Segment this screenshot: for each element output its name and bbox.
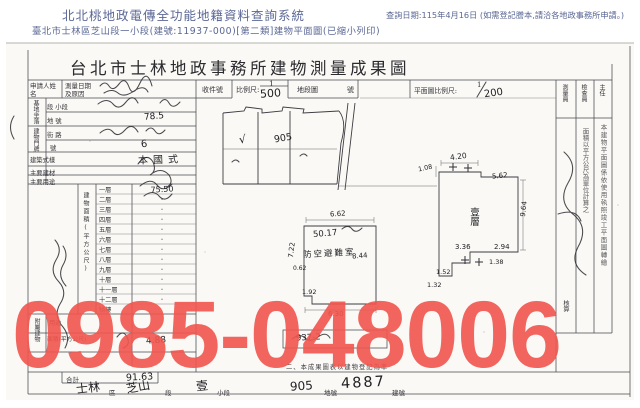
- receipt-label: 收件號: [202, 85, 223, 95]
- plan-dim-bottom4: 1.52: [436, 268, 450, 276]
- floor-area-row: 四層 ·: [96, 214, 196, 224]
- margin-caption-chief: 主任: [597, 84, 606, 116]
- street-row-label: 街 路: [47, 130, 62, 139]
- margin-check-label: 核算: [561, 300, 570, 326]
- style-row-label: 建築式樣: [30, 155, 55, 164]
- floor-label: 七層: [96, 245, 133, 254]
- floor-area-row: 九層 ·: [96, 264, 196, 274]
- floor-label: 一層: [96, 185, 133, 194]
- floor-plan-label: 壹層: [466, 207, 480, 235]
- document-line: 臺北市士林區芝山段一小段(建號:11937-000)[第二類]建物平面圖(已縮小…: [32, 23, 380, 37]
- margin-note-a: 本建物平面圖係依使用執照竣工平面圖轉繪: [598, 124, 608, 329]
- usage-row-label: 主要用途: [30, 177, 55, 186]
- floor-area-row: 七層 ·: [96, 244, 196, 254]
- floor-label: 二層: [96, 195, 133, 204]
- system-title: 北北桃地政電傳全功能地籍資料查詢系統: [62, 5, 305, 24]
- houseno-row-label: 號: [50, 143, 56, 152]
- plan-dim-bottom3: 1.38: [489, 258, 503, 266]
- basement-room-area: 8.44: [352, 251, 368, 260]
- sheet-no-label: 號: [347, 85, 354, 95]
- margin-note-b: 面積以平方公尺為單位計算之: [580, 128, 590, 318]
- floor-area-row: 六層 ·: [96, 234, 196, 244]
- form-title: 台北市士林地政事務所建物測量成果圖: [70, 55, 410, 79]
- floor-area-row: 一層 75.50: [96, 184, 196, 194]
- floor-label: 六層: [96, 235, 133, 244]
- land-building-label: 建號: [392, 387, 405, 397]
- floor-area-row: 五層 ·: [96, 224, 196, 234]
- basement-dim-top: 6.62: [330, 209, 346, 218]
- applicant-label: 申請人姓名: [30, 82, 56, 98]
- basement-dim-step1: 0.62: [293, 265, 306, 272]
- map-sheet-label: 地段圖: [297, 85, 318, 95]
- plan-dim-bottom2: 2.94: [494, 243, 510, 251]
- scale-label: 比例尺:: [236, 85, 259, 95]
- floor-label: 九層: [96, 265, 133, 274]
- floor-area-row: 三層 ·: [96, 204, 196, 214]
- plan-dim-bottom1: 3.36: [455, 243, 471, 251]
- floor-label: 四層: [96, 215, 133, 224]
- style-value-handwritten: 本國式: [138, 150, 183, 167]
- floor-area-row: 二層 ·: [96, 194, 196, 204]
- lot-number-handwritten: 78.5: [144, 111, 165, 123]
- land-section-label: 段: [165, 387, 172, 397]
- land-district-label: 區: [109, 387, 116, 397]
- scale-denominator-handwritten: 500: [260, 86, 282, 100]
- floor-label: 五層: [96, 225, 133, 234]
- floor-label: 八層: [96, 255, 133, 264]
- survey-date-label: 測量日期及原因: [65, 82, 93, 98]
- section-row-label: 段 小段: [47, 102, 68, 111]
- plan-dim-topright: 5.62: [492, 171, 508, 181]
- floor-area-row: 八層 ·: [96, 254, 196, 264]
- lot-row-label: 地 號: [47, 116, 62, 125]
- land-lot-label: 地號: [324, 387, 337, 397]
- houseno-handwritten: 6: [140, 139, 147, 151]
- door-plate-group-label: 建物門牌: [31, 128, 40, 152]
- scanned-survey-page: 北北桃地政電傳全功能地籍資料查詢系統 查詢日期:115年4月16日 (如需登記謄…: [0, 0, 640, 408]
- land-subsection-label: 小段: [217, 387, 230, 397]
- margin-caption-surveyor: 測量員: [560, 84, 569, 116]
- plan-scale-numerator: 1: [477, 81, 481, 89]
- query-date-note: 查詢日期:115年4月16日 (如需登記謄本,請洽各地政事務所申請。): [386, 9, 624, 21]
- red-watermark-phone-number: 0985-048006: [12, 288, 561, 383]
- plan-scale-label: 平面圖比例尺:: [414, 85, 457, 95]
- margin-caption-checker: 檢查員: [579, 84, 588, 116]
- floor-label: 三層: [96, 205, 133, 214]
- site-location-group-label: 基地坐落: [31, 100, 40, 126]
- material-row-label: 主要建材: [30, 168, 55, 177]
- basement-area-value: 50.17: [313, 228, 338, 240]
